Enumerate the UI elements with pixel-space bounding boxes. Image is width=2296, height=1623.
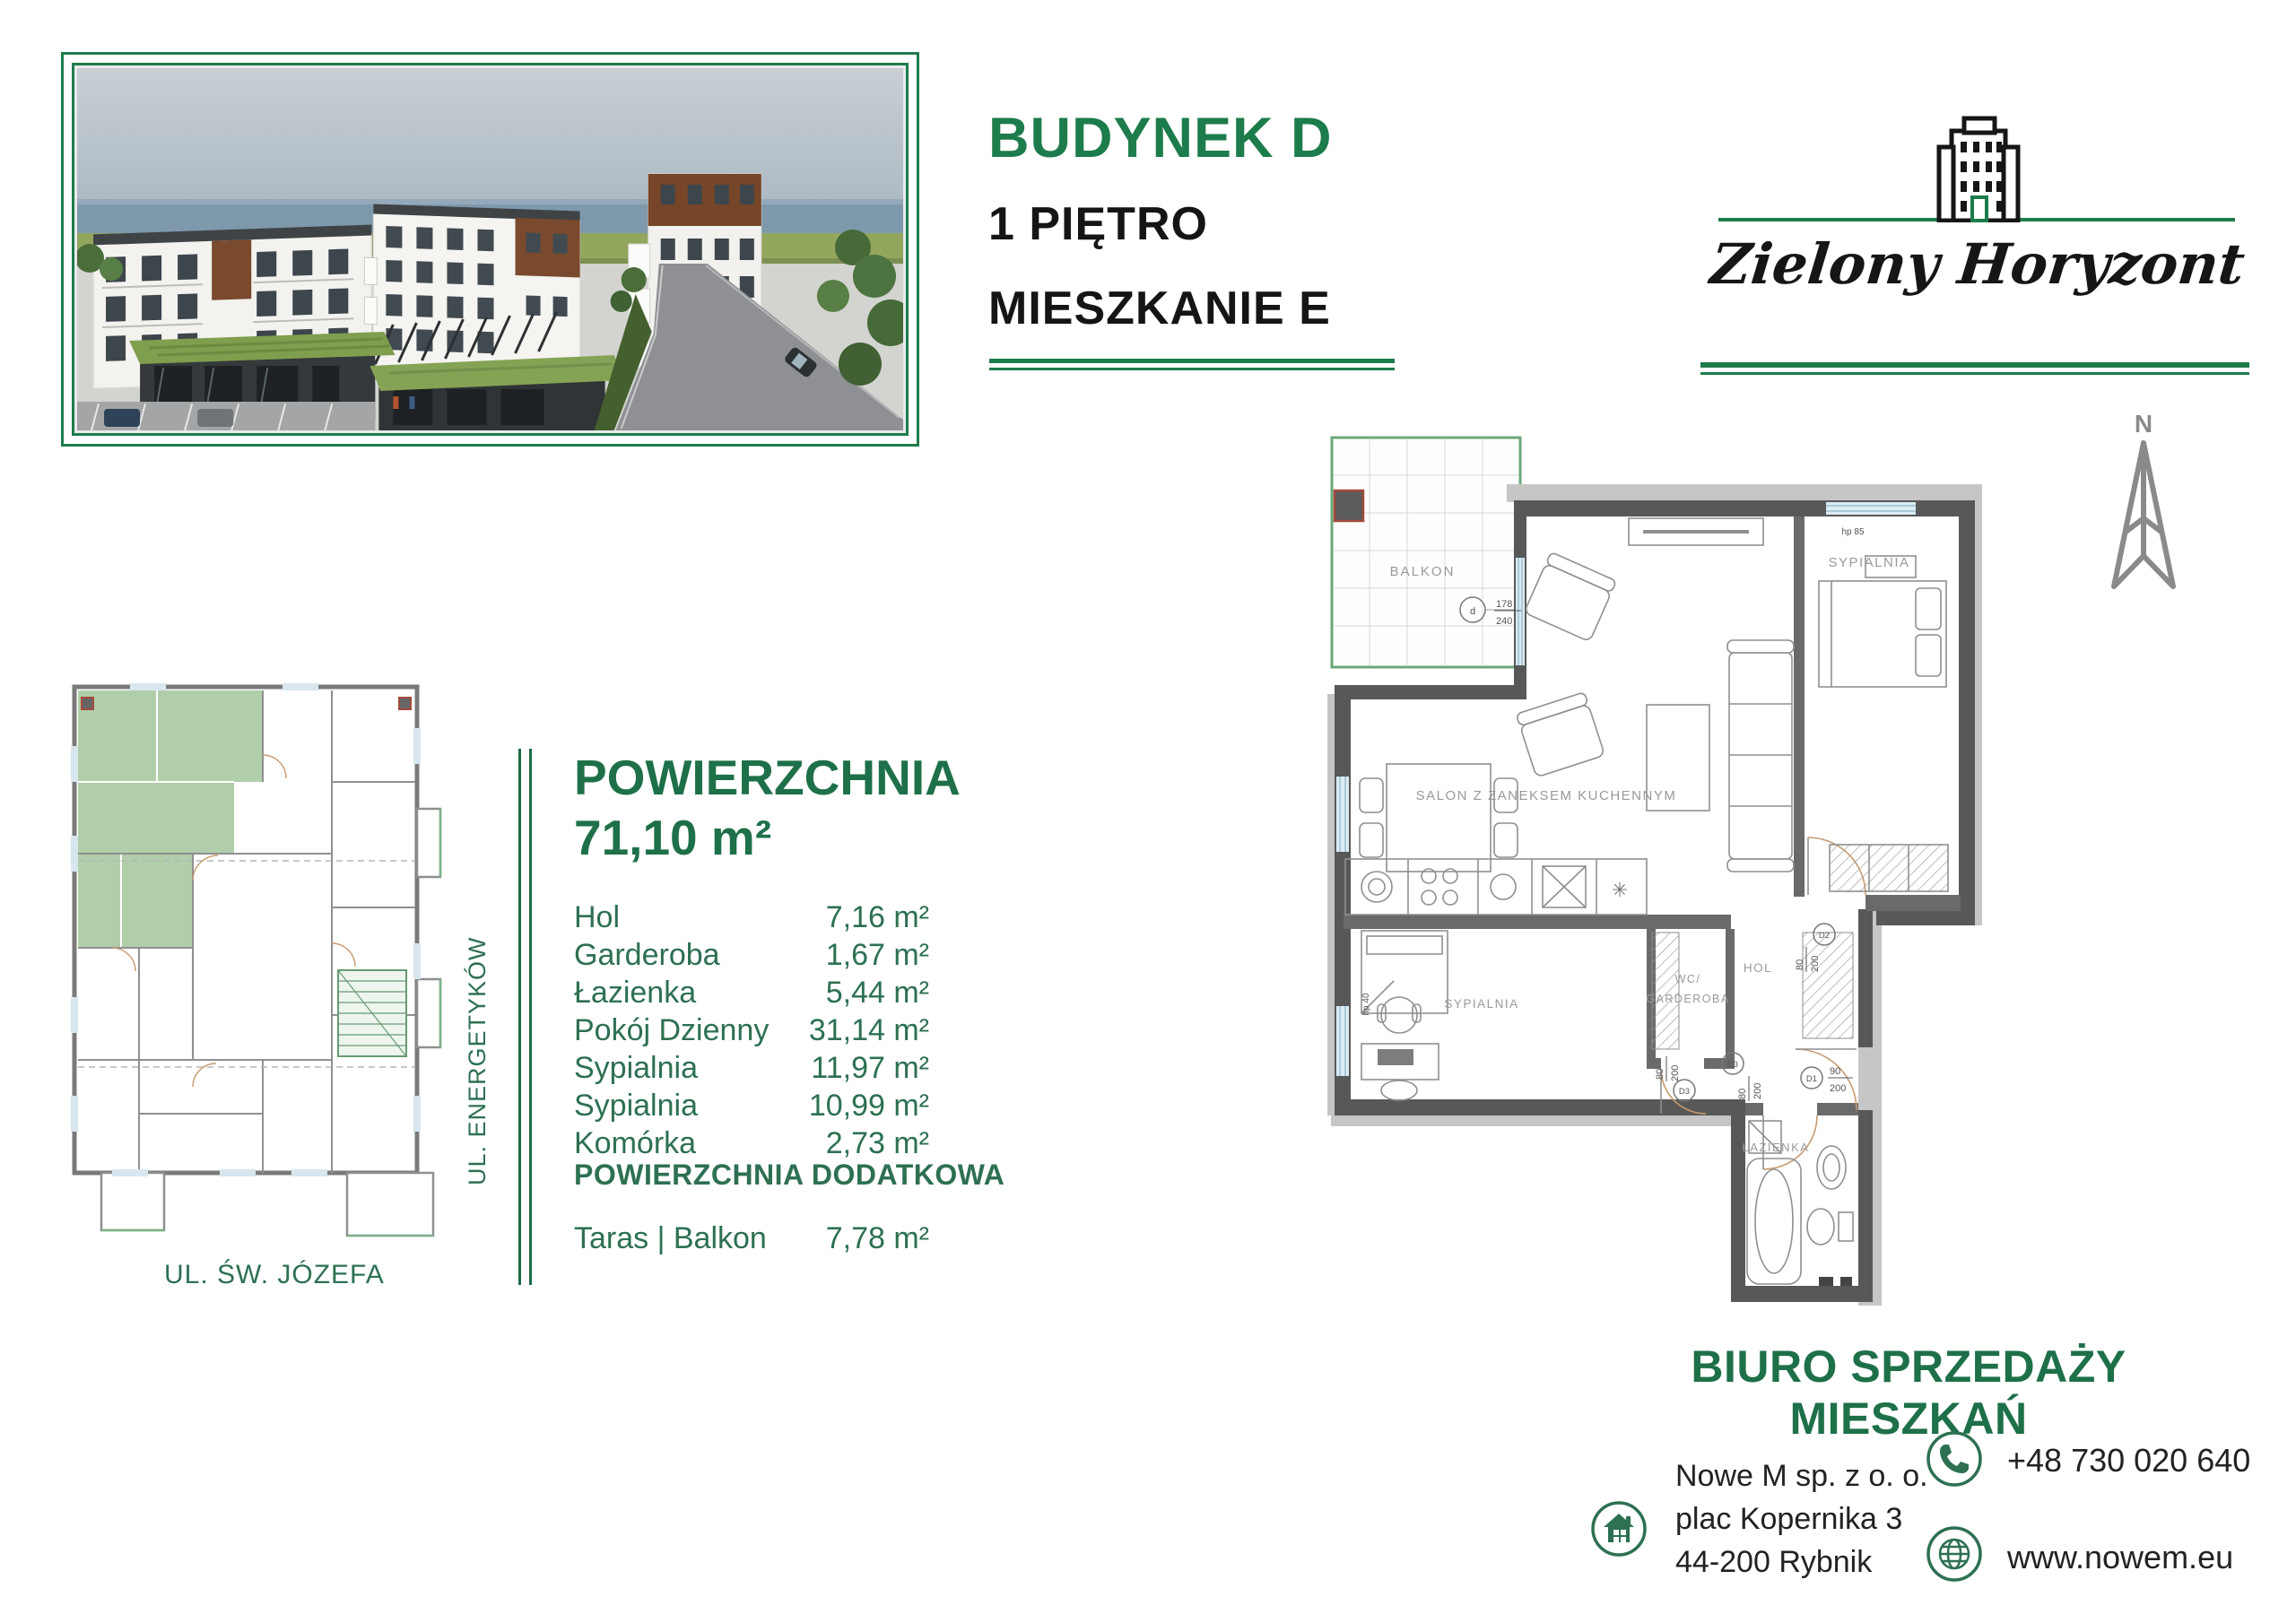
hall-wardrobe xyxy=(1803,933,1853,1038)
floor-title: 1 PIĘTRO xyxy=(988,197,1208,251)
room-label: Sypialnia xyxy=(574,1049,698,1087)
area-title: POWIERZCHNIA xyxy=(574,749,961,806)
bedroom-top-furniture xyxy=(1819,556,1948,891)
room-label: Komórka xyxy=(574,1124,696,1162)
area-total: 71,10 m² xyxy=(574,809,771,866)
bathroom-label: ŁAZIENKA xyxy=(1743,1141,1810,1154)
svg-text:200: 200 xyxy=(1752,1083,1763,1099)
wc-label-1: WC/ xyxy=(1675,973,1701,985)
phone-icon xyxy=(1925,1429,1984,1488)
hall-label: HOL xyxy=(1744,961,1772,975)
north-compass-icon: N xyxy=(2094,404,2193,616)
room-value: 10,99 m² xyxy=(809,1087,929,1124)
table-row: Hol7,16 m² xyxy=(574,898,929,936)
person xyxy=(409,396,414,409)
parking-area xyxy=(77,402,375,430)
brand-name: Zielony Horyzont xyxy=(1700,231,2255,297)
street-label-jozefa: UL. ŚW. JÓZEFA xyxy=(164,1260,385,1290)
svg-text:80: 80 xyxy=(1655,1069,1665,1080)
room-value: 7,78 m² xyxy=(826,1219,929,1257)
wc-shelf xyxy=(1652,933,1679,1049)
sales-office-title: BIURO SPRZEDAŻY MIESZKAŃ xyxy=(1577,1341,2240,1445)
room-value: 31,14 m² xyxy=(809,1011,929,1049)
home-icon xyxy=(1589,1499,1648,1558)
kitchen-annex: ✳ xyxy=(1345,859,1647,915)
svg-text:200: 200 xyxy=(1830,1083,1846,1094)
table-row: Komórka2,73 m² xyxy=(574,1124,929,1162)
building-site-plan xyxy=(58,674,480,1271)
area-divider-line-2 xyxy=(529,749,532,1285)
phone-number: +48 730 020 640 xyxy=(2007,1442,2250,1480)
table-row: Pokój Dzienny31,14 m² xyxy=(574,1011,929,1049)
building-title: BUDYNEK D xyxy=(988,106,1333,170)
room-value: 1,67 m² xyxy=(826,936,929,974)
title-rule-thick xyxy=(989,359,1395,363)
apartment-floor-plan: BALKON xyxy=(1327,430,2099,1314)
title-rule-thin xyxy=(989,368,1395,370)
table-row: Łazienka5,44 m² xyxy=(574,974,929,1011)
door-marker-d3-bath: D3 80 200 xyxy=(1722,1053,1763,1101)
svg-text:90: 90 xyxy=(1830,1066,1840,1077)
door-marker-d1: D1 90 200 xyxy=(1801,1066,1853,1094)
stairwell xyxy=(338,970,406,1056)
additional-area-title: POWIERZCHNIA DODATKOWA xyxy=(574,1159,1004,1192)
room-value: 2,73 m² xyxy=(826,1124,929,1162)
svg-text:240: 240 xyxy=(1496,616,1512,627)
area-room-table: Hol7,16 m² Garderoba1,67 m² Łazienka5,44… xyxy=(574,898,929,1162)
bedroom-bottom-label: SYPIALNIA xyxy=(1444,997,1518,1011)
hp40-marker: hp 40 xyxy=(1361,993,1371,1015)
brochure-page: BUDYNEK D 1 PIĘTRO MIESZKANIE E Zielony … xyxy=(0,0,2296,1623)
svg-text:d: d xyxy=(1470,606,1475,617)
area-divider-line xyxy=(518,749,521,1285)
table-row: Taras | Balkon7,78 m² xyxy=(574,1219,929,1257)
table-row: Garderoba1,67 m² xyxy=(574,936,929,974)
table-row: Sypialnia10,99 m² xyxy=(574,1087,929,1124)
address-line-2: 44-200 Rybnik xyxy=(1675,1541,1928,1584)
svg-text:D2: D2 xyxy=(1819,931,1830,941)
svg-text:200: 200 xyxy=(1670,1065,1681,1081)
building-render-photo xyxy=(72,63,909,436)
room-label: Sypialnia xyxy=(574,1087,698,1124)
pavilion-green-roof-2 xyxy=(370,355,624,430)
website-url: www.nowem.eu xyxy=(2007,1539,2233,1576)
svg-text:D3: D3 xyxy=(1727,1060,1738,1070)
logo-rule-thick xyxy=(1700,362,2249,368)
svg-text:D3: D3 xyxy=(1679,1087,1690,1097)
render-scene xyxy=(77,68,903,430)
svg-text:D1: D1 xyxy=(1806,1074,1817,1084)
svg-text:200: 200 xyxy=(1810,956,1821,972)
room-label: Łazienka xyxy=(574,974,696,1011)
svg-text:178: 178 xyxy=(1496,599,1512,610)
room-label: Pokój Dzienny xyxy=(574,1011,769,1049)
room-value: 11,97 m² xyxy=(811,1049,929,1087)
room-label: Taras | Balkon xyxy=(574,1219,767,1257)
living-room-label: SALON Z ZANEKSEM KUCHENNYM xyxy=(1416,788,1677,803)
street-label-energetykow: UL. ENERGETYKÓW xyxy=(464,881,500,1185)
balcony-area: BALKON xyxy=(1332,438,1520,667)
room-label: Hol xyxy=(574,898,620,936)
svg-text:80: 80 xyxy=(1737,1089,1748,1099)
apartment-title: MIESZKANIE E xyxy=(988,282,1331,335)
globe-icon xyxy=(1925,1524,1984,1584)
wc-label-2: GARDEROBA xyxy=(1646,993,1729,1005)
logo-rule-thin xyxy=(1700,372,2249,375)
balcony-label: BALKON xyxy=(1390,564,1456,579)
person xyxy=(393,396,398,409)
address-line-1: plac Kopernika 3 xyxy=(1675,1497,1928,1541)
office-address: Nowe M sp. z o. o. plac Kopernika 3 44-2… xyxy=(1675,1454,1928,1584)
logo-building-icon xyxy=(1928,111,2029,227)
additional-area-table: Taras | Balkon7,78 m² xyxy=(574,1219,929,1257)
room-value: 7,16 m² xyxy=(826,898,929,936)
svg-text:✳: ✳ xyxy=(1612,879,1628,901)
room-value: 5,44 m² xyxy=(826,974,929,1011)
bedroom-top-label: SYPIALNIA xyxy=(1828,555,1909,570)
hp85-marker: hp 85 xyxy=(1841,527,1864,537)
svg-text:80: 80 xyxy=(1795,959,1805,970)
company-name: Nowe M sp. z o. o. xyxy=(1675,1454,1928,1497)
compass-n-label: N xyxy=(2135,410,2152,438)
room-label: Garderoba xyxy=(574,936,720,974)
table-row: Sypialnia11,97 m² xyxy=(574,1049,929,1087)
bedroom-bottom-furniture xyxy=(1361,931,1448,1100)
